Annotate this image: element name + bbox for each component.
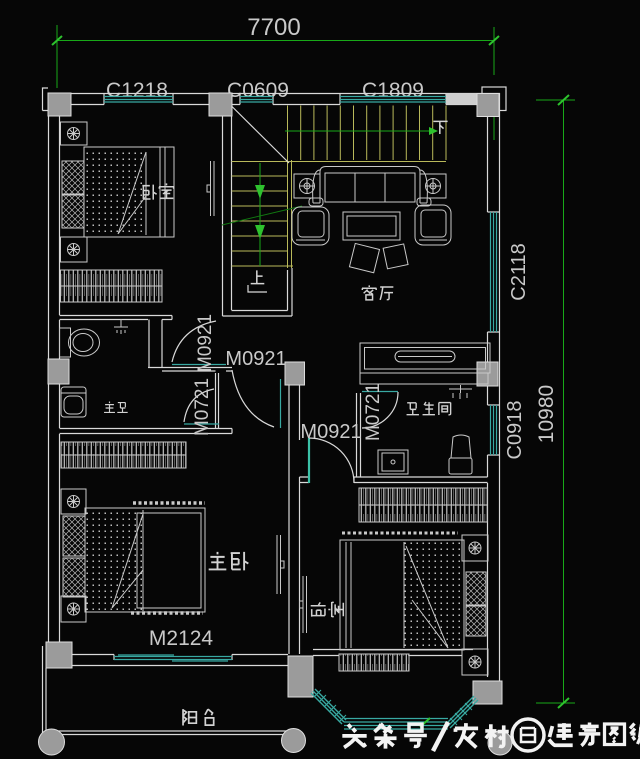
- svg-text:M0721: M0721: [363, 383, 384, 441]
- svg-text:M0921: M0921: [225, 348, 286, 370]
- svg-text:M2124: M2124: [149, 627, 214, 650]
- svg-text:M0721: M0721: [192, 378, 213, 436]
- svg-text:C1218: C1218: [106, 79, 168, 102]
- svg-text:C2118: C2118: [508, 243, 530, 300]
- svg-text:7700: 7700: [247, 14, 300, 41]
- svg-text:M0921: M0921: [300, 421, 361, 443]
- svg-text:M0921: M0921: [195, 314, 216, 372]
- svg-text:C1809: C1809: [362, 79, 424, 102]
- svg-text:10980: 10980: [535, 385, 558, 443]
- svg-text:C0609: C0609: [227, 79, 289, 102]
- svg-text:C0918: C0918: [504, 401, 526, 460]
